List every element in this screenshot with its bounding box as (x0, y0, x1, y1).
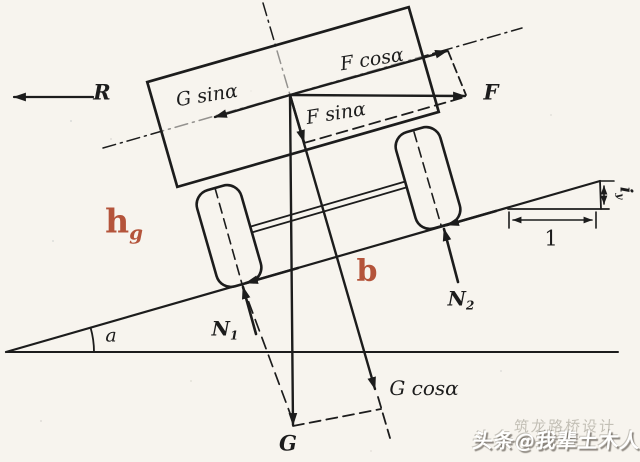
g-cos-extension-dashed (378, 397, 390, 438)
n2-reaction-arrow (444, 229, 458, 282)
grade-triangle-rise (600, 181, 601, 209)
resistance-label: R (93, 82, 110, 103)
n1-reaction-arrow (243, 287, 256, 334)
cg-height-label: hg (105, 205, 143, 244)
f-parallelogram-perp-dashed (448, 51, 466, 95)
watermark: 头条@我辈土木人 (471, 425, 640, 454)
n2-label: N2 (448, 288, 475, 311)
force-f-arrow (290, 95, 465, 96)
n1-label: N1 (212, 318, 239, 341)
slope-angle-label: a (105, 327, 116, 346)
n1-line-of-action-dashed (242, 284, 294, 424)
slope-angle-arc (91, 328, 94, 352)
gravity-label: G (279, 433, 297, 454)
grade-run-label: 1 (544, 229, 557, 250)
axle-distance-label: b (357, 257, 378, 287)
force-f-label: F (484, 82, 499, 103)
g-cos-label: G cosα (389, 378, 458, 398)
grade-rise-label: iy (615, 187, 634, 199)
incline-line (6, 181, 600, 352)
force-diagram: R G sinα F cosα F sinα F G G cosα N1 N2 … (0, 0, 640, 462)
g-parallelogram-dashed (293, 409, 381, 426)
